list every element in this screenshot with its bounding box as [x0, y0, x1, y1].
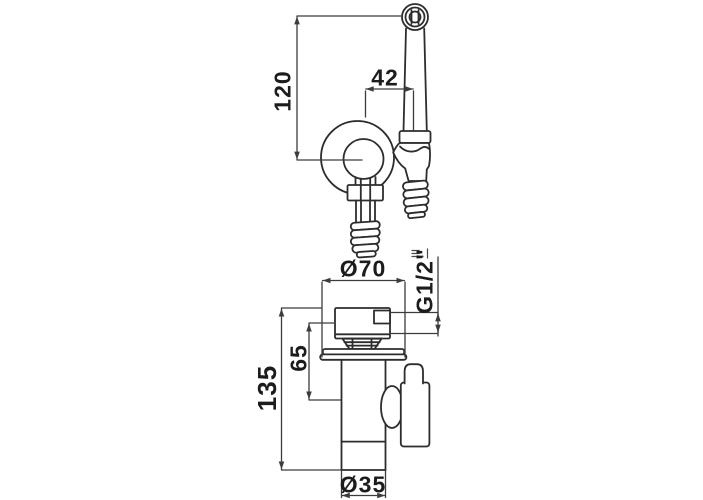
side-outlet	[381, 364, 429, 446]
valve-knob	[335, 308, 390, 339]
dim-label-handle-height: 120	[272, 70, 295, 111]
valve-body	[342, 360, 386, 470]
sprayer-view	[321, 4, 431, 258]
dim-label-thread-size: G1/2"	[414, 248, 437, 314]
technical-drawing-canvas: 120 42 Ø70 G1/2" 65 135 Ø35	[0, 0, 703, 500]
hose-right	[402, 180, 432, 219]
valve-stem	[343, 339, 382, 349]
dim-label-flange-diameter: Ø70	[340, 258, 386, 281]
wall-holder	[321, 121, 394, 194]
dim-label-outlet-height: 65	[288, 344, 311, 372]
dim-label-base-diameter: Ø35	[340, 474, 386, 497]
sprayer-handle	[400, 29, 431, 144]
dim-label-body-height: 135	[254, 365, 280, 411]
dim-label-reach-offset: 42	[371, 67, 399, 90]
drawing-linework	[0, 0, 703, 500]
sprayer-head	[402, 4, 428, 30]
holder-arm	[393, 143, 430, 181]
valve-flange	[320, 349, 406, 360]
hose-bottom	[350, 221, 382, 258]
valve-view	[320, 308, 429, 470]
